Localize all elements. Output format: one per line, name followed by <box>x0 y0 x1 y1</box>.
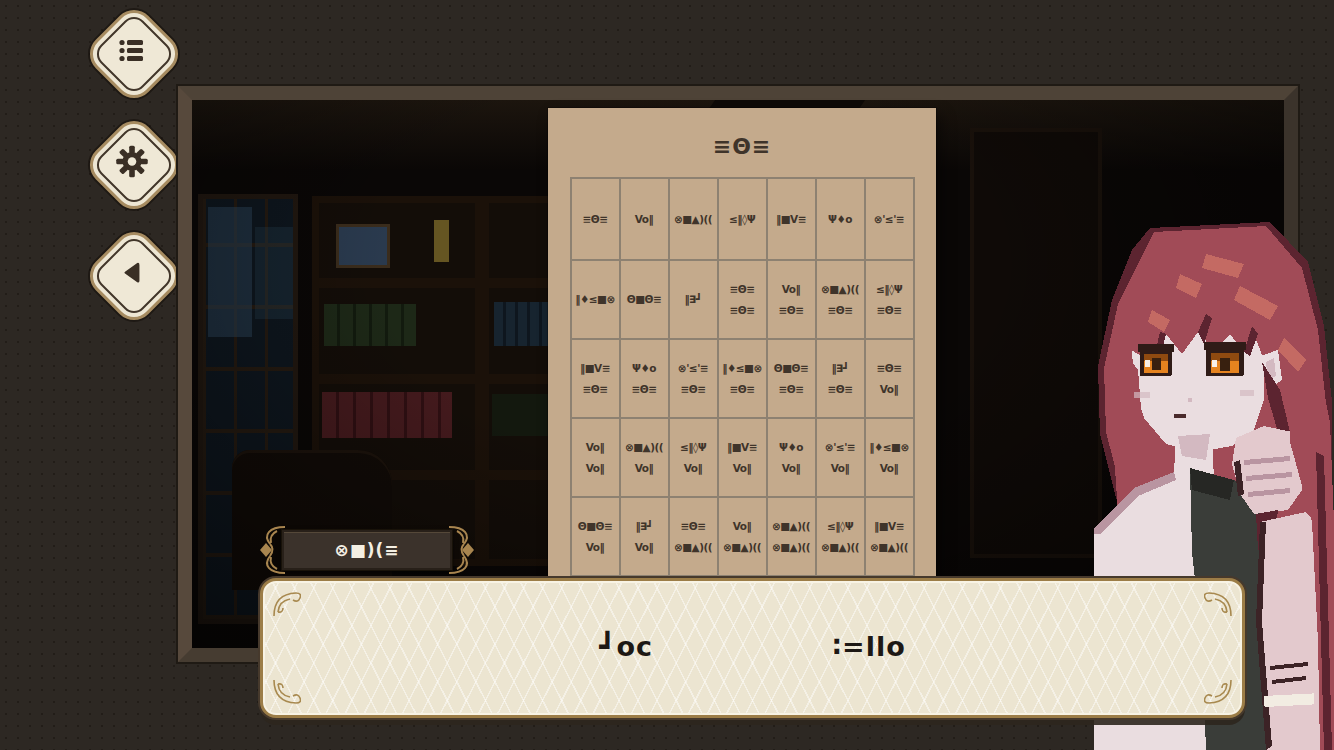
name-plate: ⊗■)(≡ <box>263 527 471 573</box>
table-cell: ≤‖◊ΨVo‖ <box>669 418 718 497</box>
glyph-word: Ψ♦o <box>817 214 864 225</box>
plate-body: ⊗■)(≡ <box>281 529 453 571</box>
glyph-word: Θ■Θ≡ <box>768 363 815 374</box>
glyph-word: ⊗'≤'≡ <box>866 214 913 225</box>
back-icon <box>118 259 146 290</box>
table-row: ‖♦≤■⊗Θ■Θ≡‖∃┛≡Θ≡≡Θ≡Vo‖≡Θ≡⊗■▲)((≡Θ≡≤‖◊Ψ≡Θ≡ <box>571 260 914 339</box>
glyph-word: ≡Θ≡ <box>670 521 717 532</box>
glyph-word: ≡Θ≡ <box>817 384 864 395</box>
back-button[interactable] <box>88 230 176 318</box>
glyph-word: Vo‖ <box>719 521 766 532</box>
glyph-word: Vo‖ <box>572 542 619 553</box>
glyph-word: ‖∃┛ <box>621 521 668 532</box>
glyph-word: Vo‖ <box>572 463 619 474</box>
table-cell: ≡Θ≡Vo‖ <box>865 339 914 418</box>
glyph-word: ‖■V≡ <box>768 214 815 225</box>
gear-icon <box>114 144 150 183</box>
glyph-word: ≤‖◊Ψ <box>719 214 766 225</box>
table-cell: ‖∃┛≡Θ≡ <box>816 339 865 418</box>
glyph-word: Vo‖ <box>621 542 668 553</box>
table-cell: ⊗'≤'≡≡Θ≡ <box>669 339 718 418</box>
glyph-word: Ψ♦o <box>768 442 815 453</box>
glyph-word: Vo‖ <box>768 284 815 295</box>
corner-flourish-icon <box>271 588 301 618</box>
glyph-word: ≡Θ≡ <box>572 214 619 225</box>
glyph-word: ≡Θ≡ <box>719 284 766 295</box>
table-row: Vo‖Vo‖⊗■▲)((Vo‖≤‖◊ΨVo‖‖■V≡Vo‖Ψ♦oVo‖⊗'≤'≡… <box>571 418 914 497</box>
glyph-word: Vo‖ <box>670 463 717 474</box>
glyph-word: ‖■V≡ <box>719 442 766 453</box>
table-cell: ⊗'≤'≡ <box>865 178 914 260</box>
glyph-word: Ψ♦o <box>621 363 668 374</box>
glyph-word: ≤‖◊Ψ <box>866 284 913 295</box>
glyph-word: ≡Θ≡ <box>572 384 619 395</box>
table-cell: ‖♦≤■⊗≡Θ≡ <box>718 339 767 418</box>
glyph-word: ⊗■▲)(( <box>866 542 913 553</box>
glyph-word: ≡Θ≡ <box>719 384 766 395</box>
dialogue-word: ∶=llo <box>833 633 906 660</box>
dialogue-box[interactable]: ┛oc ∶=llo <box>260 578 1245 718</box>
table-cell: ≡Θ≡≡Θ≡ <box>718 260 767 339</box>
table-cell: Θ■Θ≡ <box>620 260 669 339</box>
table-cell: ‖■V≡⊗■▲)(( <box>865 497 914 576</box>
glyph-word: ≤‖◊Ψ <box>670 442 717 453</box>
glyph-word: ⊗'≤'≡ <box>670 363 717 374</box>
dialogue-word: ┛oc <box>599 633 653 660</box>
glyph-word: ⊗■▲)(( <box>768 542 815 553</box>
table-row: ‖■V≡≡Θ≡Ψ♦o≡Θ≡⊗'≤'≡≡Θ≡‖♦≤■⊗≡Θ≡Θ■Θ≡≡Θ≡‖∃┛≡… <box>571 339 914 418</box>
corner-flourish-icon <box>1204 588 1234 618</box>
glyph-word: Vo‖ <box>572 442 619 453</box>
table-cell: ⊗'≤'≡Vo‖ <box>816 418 865 497</box>
glyph-word: Vo‖ <box>866 463 913 474</box>
character-name-glyph: ⊗■)(≡ <box>334 540 399 560</box>
glyph-word: ≡Θ≡ <box>719 305 766 316</box>
log-button[interactable] <box>88 8 176 96</box>
table-cell: ⊗■▲)((⊗■▲)(( <box>767 497 816 576</box>
game-screen: { "colors": { "gold_accent": "#a8894f", … <box>0 0 1334 750</box>
paper-title-glyph: ≡Θ≡ <box>548 134 936 159</box>
plate-flourish-icon <box>257 515 287 585</box>
glyph-word: ≡Θ≡ <box>768 305 815 316</box>
table-cell: ⊗■▲)((≡Θ≡ <box>816 260 865 339</box>
table-cell: ≡Θ≡ <box>571 178 620 260</box>
glyph-word: ⊗■▲)(( <box>719 542 766 553</box>
table-cell: ⊗■▲)((Vo‖ <box>620 418 669 497</box>
table-row: ≡Θ≡Vo‖⊗■▲)((≤‖◊Ψ‖■V≡Ψ♦o⊗'≤'≡ <box>571 178 914 260</box>
corner-flourish-icon <box>271 678 301 708</box>
glyph-word: ⊗■▲)(( <box>621 442 668 453</box>
glyph-word: ⊗■▲)(( <box>817 542 864 553</box>
table-row: Θ■Θ≡Vo‖‖∃┛Vo‖≡Θ≡⊗■▲)((Vo‖⊗■▲)((⊗■▲)((⊗■▲… <box>571 497 914 576</box>
dialogue-text: ┛oc ∶=llo <box>263 633 1242 660</box>
glyph-word: ≤‖◊Ψ <box>817 521 864 532</box>
glyph-word: ‖♦≤■⊗ <box>572 294 619 305</box>
table-cell: ≡Θ≡⊗■▲)(( <box>669 497 718 576</box>
table-cell: ≤‖◊Ψ⊗■▲)(( <box>816 497 865 576</box>
table-cell: ‖∃┛Vo‖ <box>620 497 669 576</box>
glyph-table: ≡Θ≡Vo‖⊗■▲)((≤‖◊Ψ‖■V≡Ψ♦o⊗'≤'≡‖♦≤■⊗Θ■Θ≡‖∃┛… <box>570 177 915 577</box>
table-cell: ‖♦≤■⊗ <box>571 260 620 339</box>
glyph-word: Vo‖ <box>719 463 766 474</box>
glyph-word: ⊗■▲)(( <box>670 542 717 553</box>
glyph-word: ≡Θ≡ <box>866 305 913 316</box>
list-icon <box>116 35 148 70</box>
glyph-word: ⊗■▲)(( <box>817 284 864 295</box>
table-cell: ‖■V≡ <box>767 178 816 260</box>
table-cell: Ψ♦o≡Θ≡ <box>620 339 669 418</box>
glyph-word: Θ■Θ≡ <box>572 521 619 532</box>
table-cell: ‖∃┛ <box>669 260 718 339</box>
glyph-word: ⊗'≤'≡ <box>817 442 864 453</box>
table-cell: Ψ♦oVo‖ <box>767 418 816 497</box>
glyph-word: ≡Θ≡ <box>768 384 815 395</box>
table-cell: Θ■Θ≡Vo‖ <box>571 497 620 576</box>
table-cell: Vo‖Vo‖ <box>571 418 620 497</box>
glyph-word: ≡Θ≡ <box>866 363 913 374</box>
table-cell: ⊗■▲)(( <box>669 178 718 260</box>
table-cell: ‖■V≡Vo‖ <box>718 418 767 497</box>
table-cell: ≤‖◊Ψ≡Θ≡ <box>865 260 914 339</box>
settings-button[interactable] <box>88 119 176 207</box>
glyph-word: Vo‖ <box>866 384 913 395</box>
table-cell: Ψ♦o <box>816 178 865 260</box>
glyph-word: ⊗■▲)(( <box>670 214 717 225</box>
glyph-word: ‖■V≡ <box>866 521 913 532</box>
plate-flourish-icon <box>447 515 477 585</box>
glyph-chart-paper[interactable]: ≡Θ≡ ≡Θ≡Vo‖⊗■▲)((≤‖◊Ψ‖■V≡Ψ♦o⊗'≤'≡‖♦≤■⊗Θ■Θ… <box>548 108 936 580</box>
glyph-word: Vo‖ <box>621 463 668 474</box>
glyph-word: ≡Θ≡ <box>670 384 717 395</box>
glyph-word: ‖∃┛ <box>817 363 864 374</box>
glyph-word: ≡Θ≡ <box>817 305 864 316</box>
glyph-word: ≡Θ≡ <box>621 384 668 395</box>
glyph-word: ⊗■▲)(( <box>768 521 815 532</box>
corner-flourish-icon <box>1204 678 1234 708</box>
table-cell: Θ■Θ≡≡Θ≡ <box>767 339 816 418</box>
table-cell: ‖♦≤■⊗Vo‖ <box>865 418 914 497</box>
table-cell: Vo‖ <box>620 178 669 260</box>
table-cell: Vo‖≡Θ≡ <box>767 260 816 339</box>
glyph-word: Vo‖ <box>768 463 815 474</box>
glyph-word: ‖∃┛ <box>670 294 717 305</box>
glyph-word: ‖■V≡ <box>572 363 619 374</box>
table-cell: ‖■V≡≡Θ≡ <box>571 339 620 418</box>
table-cell: ≤‖◊Ψ <box>718 178 767 260</box>
glyph-word: Θ■Θ≡ <box>621 294 668 305</box>
glyph-word: ‖♦≤■⊗ <box>866 442 913 453</box>
glyph-word: ‖♦≤■⊗ <box>719 363 766 374</box>
glyph-word: Vo‖ <box>621 214 668 225</box>
glyph-word: Vo‖ <box>817 463 864 474</box>
table-cell: Vo‖⊗■▲)(( <box>718 497 767 576</box>
